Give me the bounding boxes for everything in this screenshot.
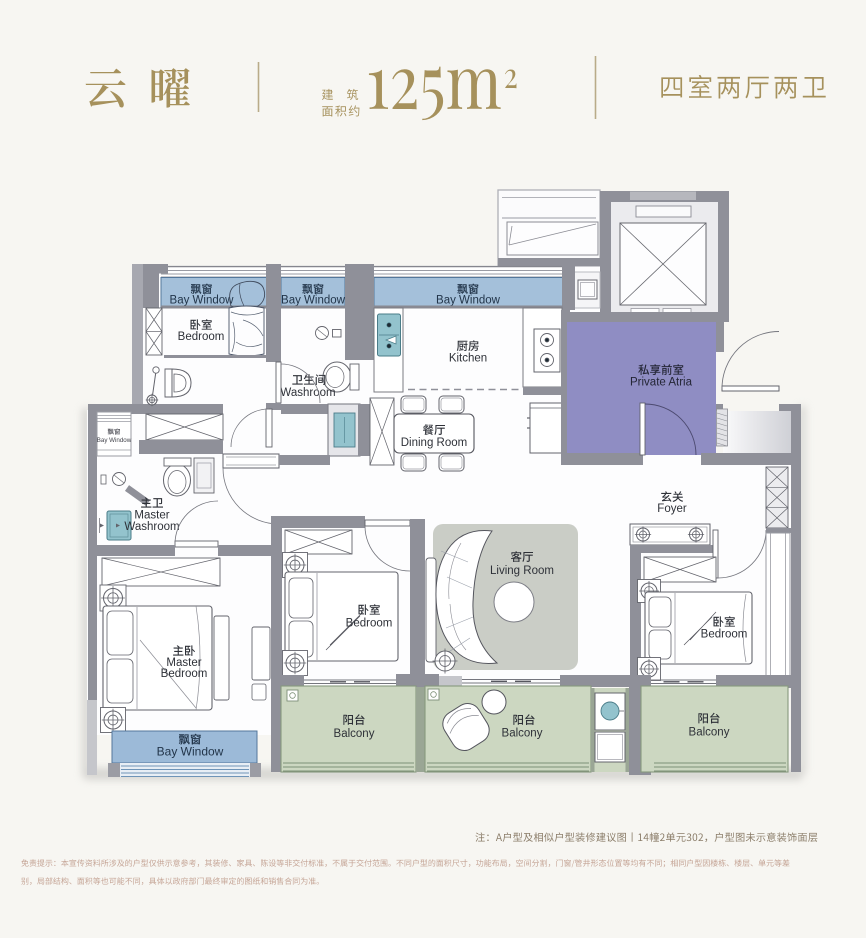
svg-text:Bay Window: Bay Window [436,295,501,307]
svg-text:Bay Window: Bay Window [170,295,235,307]
svg-text:Bay Window: Bay Window [157,745,224,759]
svg-text:Washroom: Washroom [280,387,335,399]
svg-text:Bay Window: Bay Window [97,437,132,444]
svg-text:Bedroom: Bedroom [178,331,225,343]
svg-text:Bedroom: Bedroom [701,629,748,641]
svg-text:Bay Window: Bay Window [281,295,346,307]
svg-text:Foyer: Foyer [657,503,687,515]
svg-text:Balcony: Balcony [502,728,543,740]
svg-text:Bedroom: Bedroom [346,618,393,630]
svg-text:Bedroom: Bedroom [161,668,208,680]
svg-text:Dining Room: Dining Room [401,437,467,449]
svg-text:Balcony: Balcony [689,727,730,739]
svg-text:Private Atria: Private Atria [630,377,693,389]
svg-text:Washroom: Washroom [124,521,179,533]
svg-text:Living Room: Living Room [490,565,554,577]
svg-text:Balcony: Balcony [334,728,375,740]
svg-text:Master: Master [134,510,169,522]
svg-text:Kitchen: Kitchen [449,353,487,365]
